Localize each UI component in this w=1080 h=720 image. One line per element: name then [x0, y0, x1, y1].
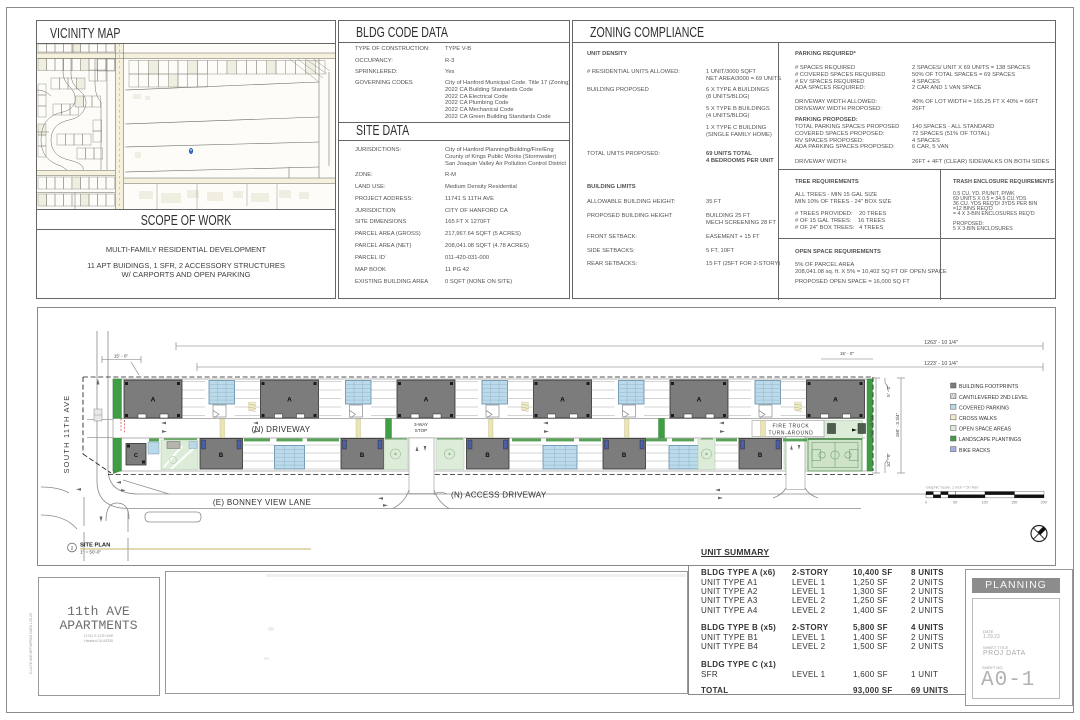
- svg-text:15' - 0": 15' - 0": [840, 351, 855, 356]
- svg-text:BUILDING FOOTPRINTS: BUILDING FOOTPRINTS: [959, 384, 1019, 390]
- svg-text:B: B: [758, 453, 763, 459]
- svg-text:A: A: [833, 397, 838, 404]
- svg-text:STOP: STOP: [415, 428, 427, 433]
- svg-text:5' - 0": 5' - 0": [886, 385, 891, 397]
- svg-text:CANTILEVERED 2ND LEVEL: CANTILEVERED 2ND LEVEL: [959, 395, 1028, 401]
- svg-text:C: C: [134, 453, 138, 459]
- svg-text:A: A: [560, 397, 565, 404]
- svg-text:SOUTH 11TH AVE: SOUTH 11TH AVE: [62, 394, 71, 473]
- svg-text:50': 50': [953, 501, 958, 505]
- svg-text:B: B: [622, 453, 627, 459]
- svg-text:Graphic Scale: 1 inch = 50 fee: Graphic Scale: 1 inch = 50 feet: [926, 486, 979, 490]
- svg-text:3-WAY: 3-WAY: [414, 422, 428, 427]
- svg-text:15' - 0": 15' - 0": [114, 354, 129, 359]
- svg-text:SITE PLAN: SITE PLAN: [80, 543, 110, 549]
- svg-text:0: 0: [925, 501, 927, 505]
- svg-text:1" = 50'-0": 1" = 50'-0": [80, 550, 101, 555]
- svg-text:A: A: [151, 397, 156, 404]
- svg-text:10' - 0": 10' - 0": [886, 453, 891, 468]
- svg-text:FIRE TRUCK: FIRE TRUCK: [773, 424, 810, 430]
- svg-text:COVERED PARKING: COVERED PARKING: [959, 405, 1009, 411]
- svg-text:1263' - 10 1/4": 1263' - 10 1/4": [924, 340, 958, 346]
- svg-text:150': 150': [1011, 501, 1018, 505]
- svg-text:A: A: [697, 397, 702, 404]
- svg-text:B: B: [360, 453, 365, 459]
- svg-text:LANDSCAPE PLANTINGS: LANDSCAPE PLANTINGS: [959, 437, 1022, 443]
- svg-text:165' - 3 3/4": 165' - 3 3/4": [895, 412, 900, 437]
- svg-text:TURN-AROUND: TURN-AROUND: [769, 431, 814, 437]
- svg-text:2: 2: [71, 546, 74, 552]
- svg-text:(N) ACCESS DRIVEWAY: (N) ACCESS DRIVEWAY: [451, 491, 547, 500]
- svg-text:(E) BONNEY VIEW LANE: (E) BONNEY VIEW LANE: [213, 498, 311, 507]
- svg-text:BIKE RACKS: BIKE RACKS: [959, 448, 991, 454]
- svg-text:(N) DRIVEWAY: (N) DRIVEWAY: [252, 425, 311, 434]
- svg-text:B: B: [485, 453, 490, 459]
- svg-text:A: A: [287, 397, 292, 404]
- svg-text:OPEN SPACE AREAS: OPEN SPACE AREAS: [959, 427, 1012, 433]
- svg-text:CROSS WALKS: CROSS WALKS: [959, 416, 997, 422]
- svg-text:B: B: [219, 453, 224, 459]
- svg-text:150' - 3 3/4": 150' - 3 3/4": [870, 413, 875, 438]
- svg-text:200': 200': [1041, 501, 1048, 505]
- svg-text:1223' - 10 1/4": 1223' - 10 1/4": [924, 361, 958, 367]
- svg-text:100': 100': [982, 501, 989, 505]
- svg-text:A: A: [424, 397, 429, 404]
